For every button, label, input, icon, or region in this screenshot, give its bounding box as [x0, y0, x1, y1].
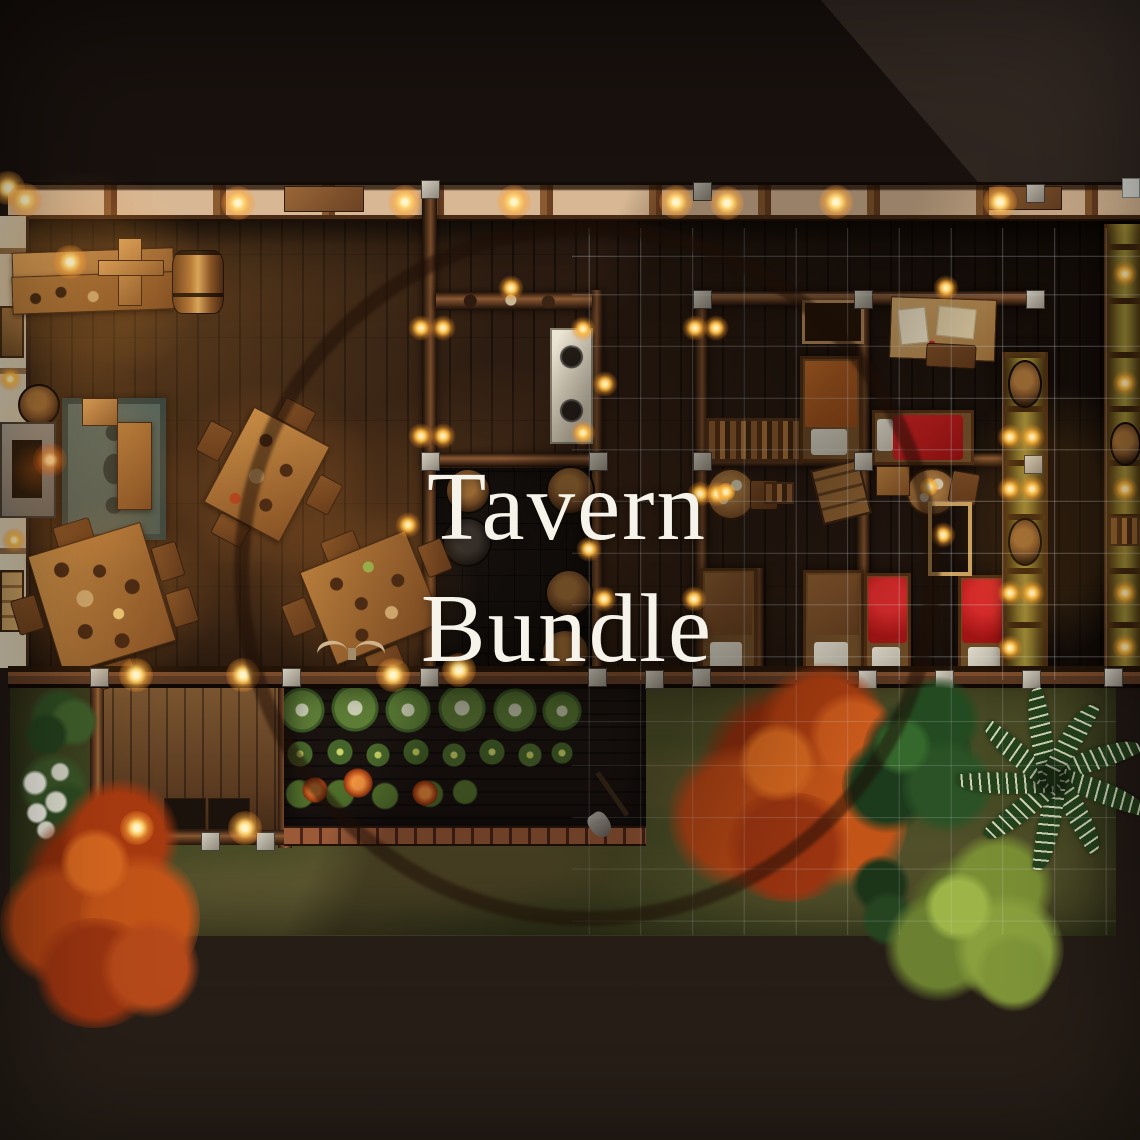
- tavern-battle-map: Tavern Bundle: [0, 0, 1140, 1140]
- title-line-1: Tavern: [421, 446, 713, 568]
- page-title: Tavern Bundle: [421, 446, 713, 690]
- title-line-2: Bundle: [421, 568, 713, 690]
